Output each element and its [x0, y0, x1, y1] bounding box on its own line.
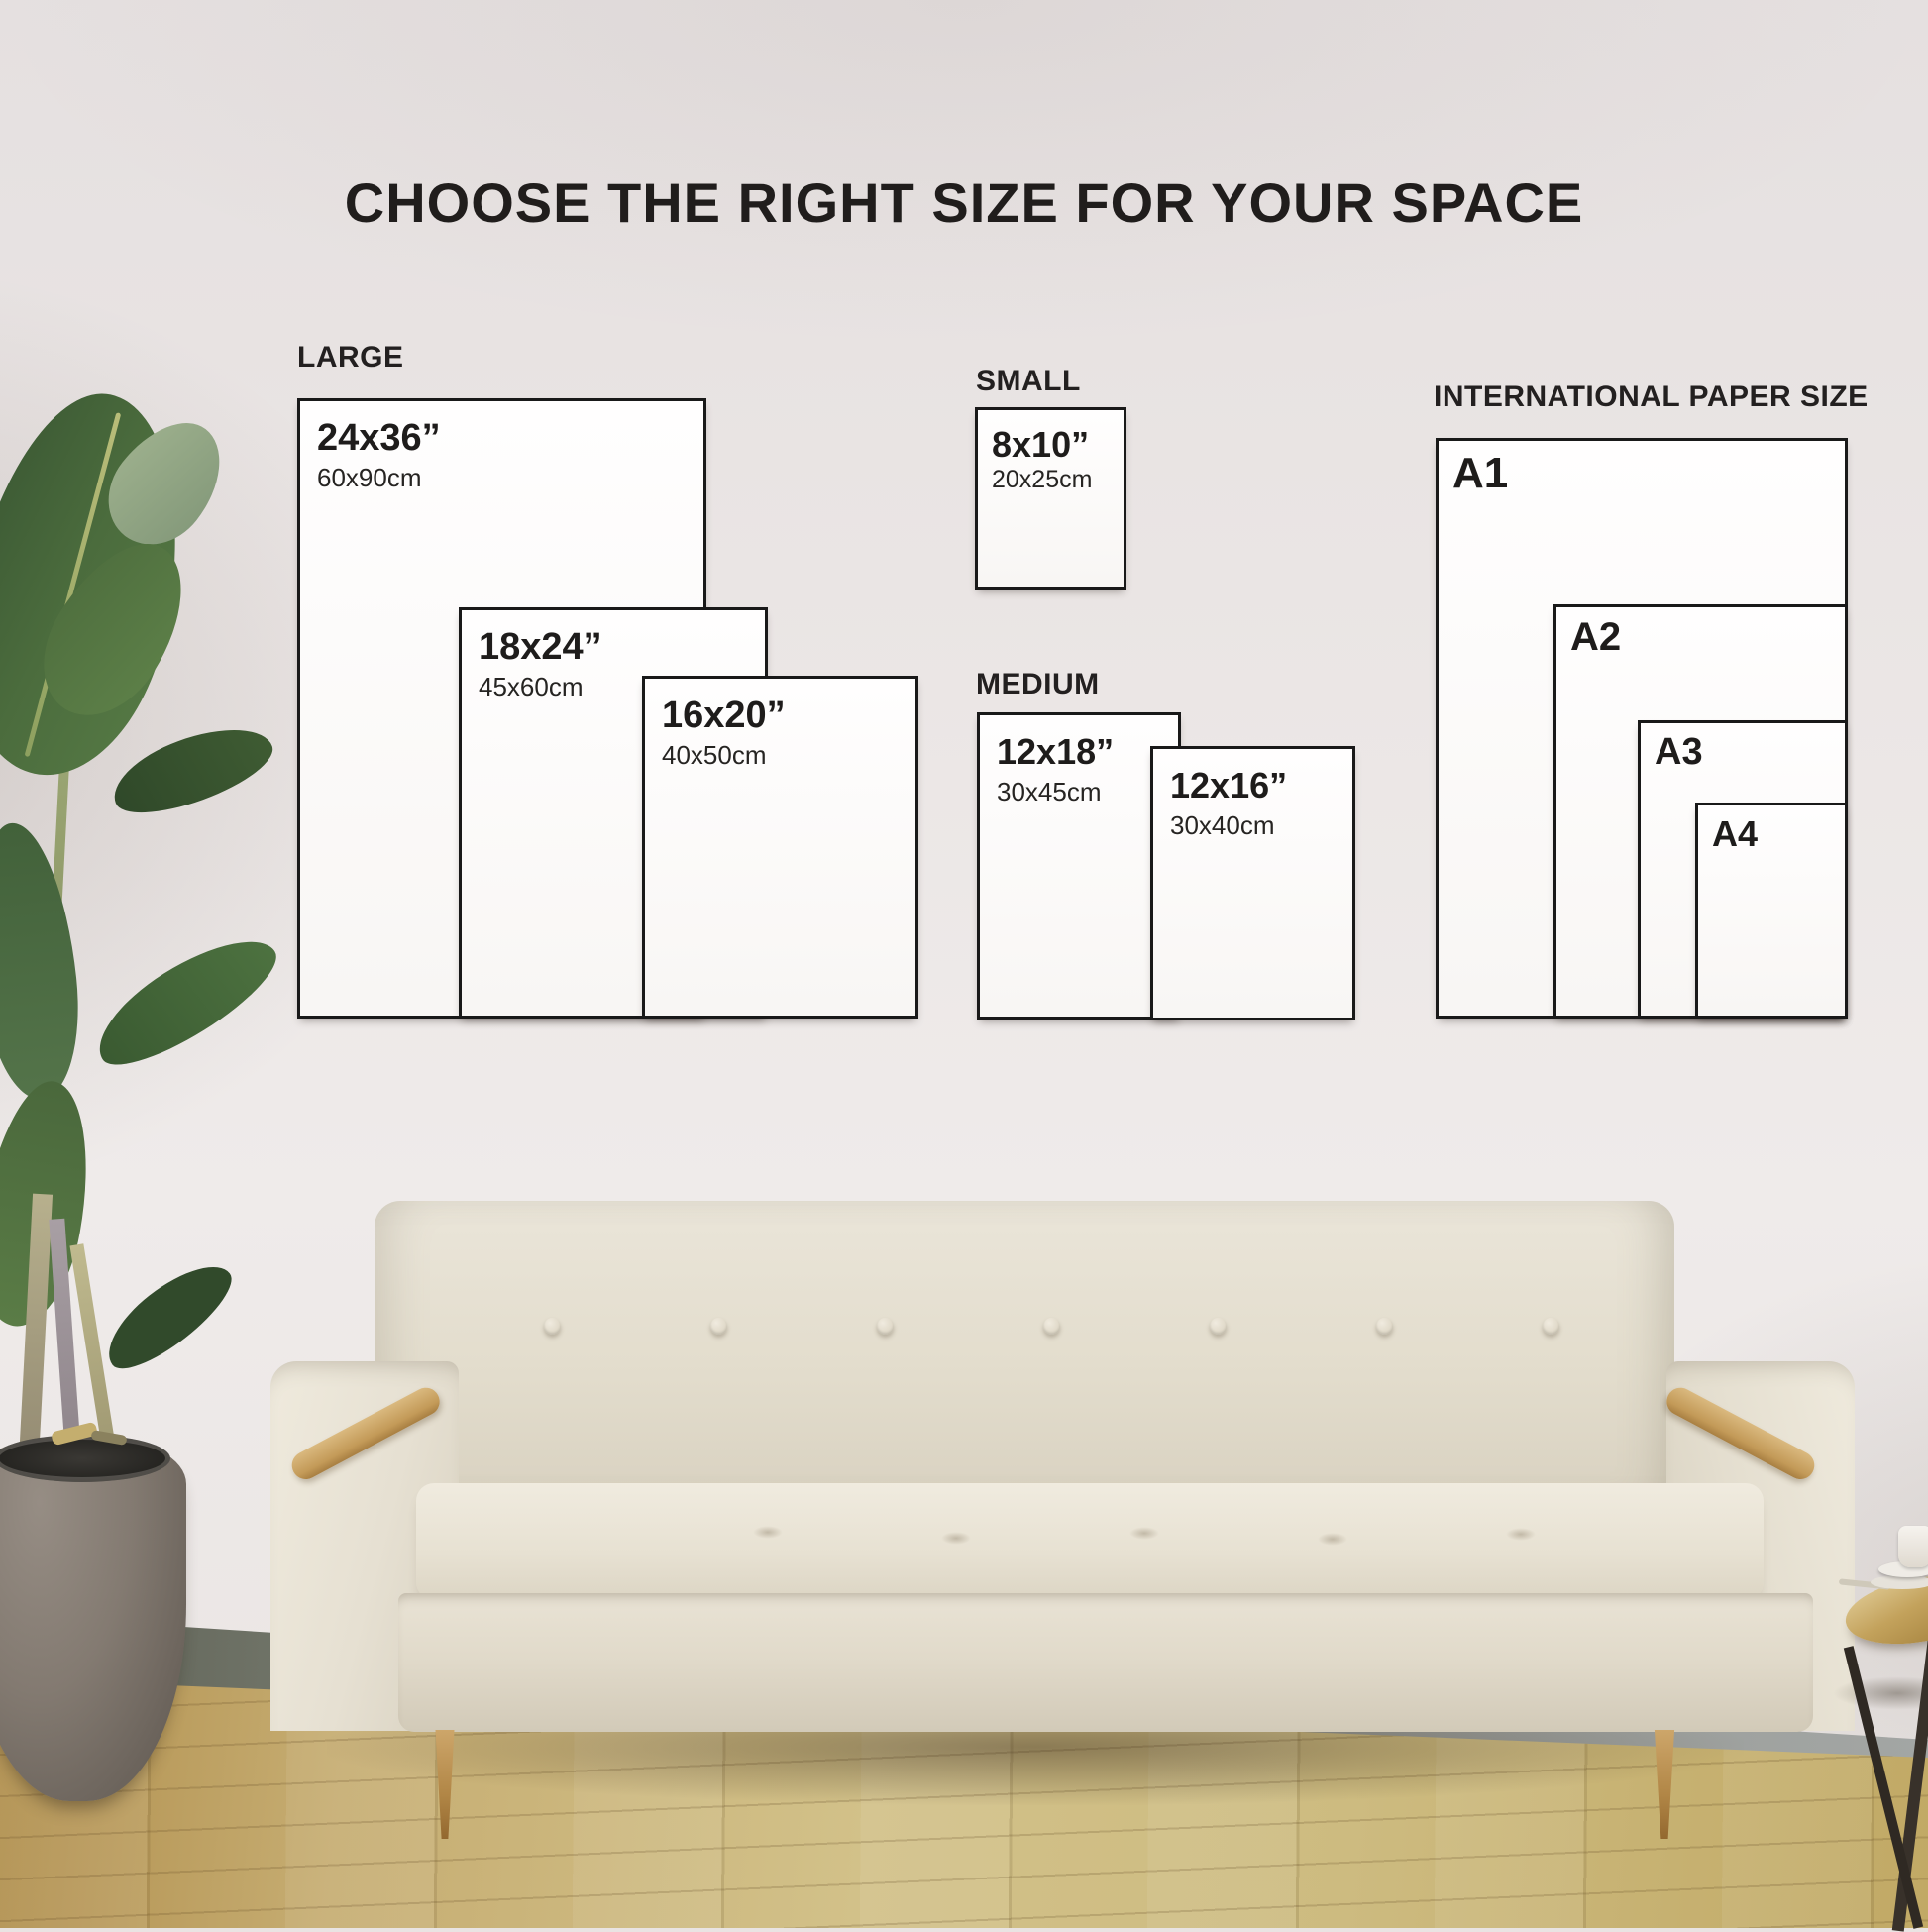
size-box-16x20: 16x20” 40x50cm	[642, 676, 918, 1019]
size-cm-label: 20x25cm	[992, 466, 1092, 494]
size-cm-label: 60x90cm	[317, 463, 422, 493]
paper-size-label: A2	[1570, 615, 1621, 660]
coffee-cup	[1898, 1526, 1928, 1567]
size-cm-label: 45x60cm	[479, 672, 584, 702]
size-inches-label: 12x18”	[997, 731, 1114, 773]
paper-size-label: A3	[1655, 731, 1703, 774]
size-box-8x10: 8x10” 20x25cm	[975, 407, 1126, 590]
sofa-seat-dimple	[753, 1526, 783, 1539]
sofa-tuft-button	[1543, 1318, 1559, 1335]
plant-pot-rim	[0, 1435, 170, 1482]
sofa-seat-dimple	[1318, 1533, 1347, 1546]
size-cm-label: 40x50cm	[662, 740, 767, 771]
plate	[1871, 1575, 1928, 1589]
section-label-international: INTERNATIONAL PAPER SIZE	[1434, 380, 1869, 414]
sofa-tuft-button	[1210, 1318, 1227, 1335]
section-label-small: SMALL	[976, 365, 1081, 398]
sofa-backrest	[375, 1201, 1674, 1498]
section-label-large: LARGE	[297, 341, 404, 375]
size-cm-label: 30x40cm	[1170, 810, 1275, 841]
sofa-tuft-button	[544, 1318, 561, 1335]
paper-size-label: A1	[1452, 449, 1508, 498]
sofa-seat-dimple	[1506, 1528, 1536, 1541]
section-label-medium: MEDIUM	[976, 668, 1100, 701]
sofa-tuft-button	[710, 1318, 727, 1335]
size-inches-label: 8x10”	[992, 424, 1089, 466]
sofa-seat-dimple	[1129, 1527, 1159, 1540]
size-box-12x16: 12x16” 30x40cm	[1150, 746, 1355, 1020]
sofa-seat-cushion	[416, 1483, 1764, 1600]
sofa-base	[398, 1593, 1813, 1732]
size-cm-label: 30x45cm	[997, 777, 1102, 807]
sofa-seat-dimple	[941, 1532, 971, 1545]
paper-size-label: A4	[1712, 813, 1758, 855]
sofa-tuft-button	[1043, 1318, 1060, 1335]
size-inches-label: 16x20”	[662, 695, 786, 737]
sofa-tuft-button	[1376, 1318, 1393, 1335]
size-inches-label: 18x24”	[479, 626, 602, 669]
page-title: CHOOSE THE RIGHT SIZE FOR YOUR SPACE	[0, 170, 1928, 235]
sofa-tuft-button	[877, 1318, 894, 1335]
size-box-a4: A4	[1695, 803, 1848, 1019]
size-inches-label: 12x16”	[1170, 765, 1287, 806]
sofa-floor-shadow	[327, 1722, 1744, 1805]
size-inches-label: 24x36”	[317, 417, 441, 460]
